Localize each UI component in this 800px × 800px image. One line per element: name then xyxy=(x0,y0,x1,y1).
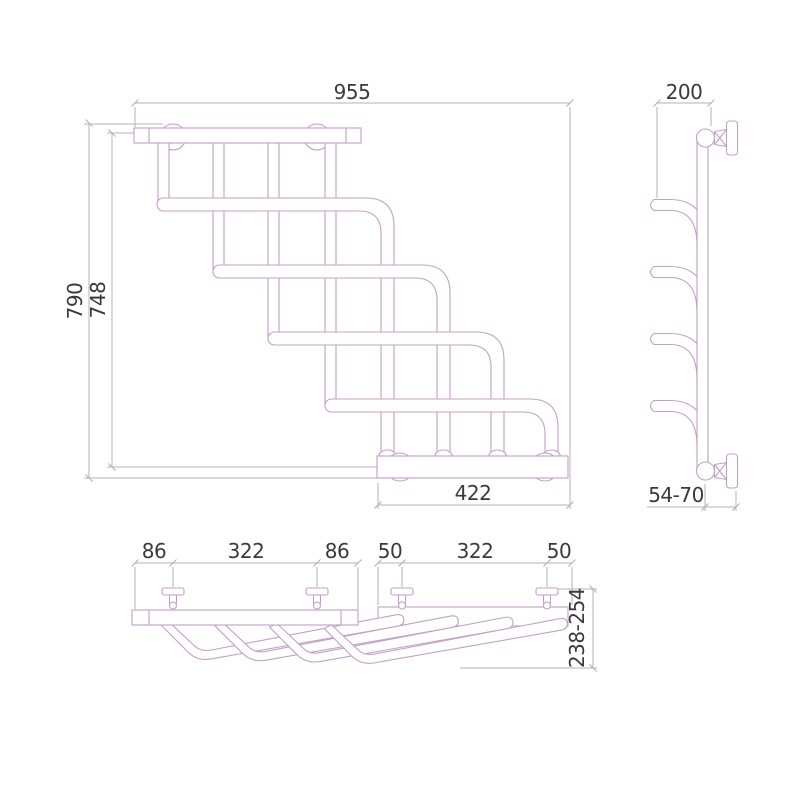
screw-icon xyxy=(391,588,413,609)
dim-overall-width: 955 xyxy=(334,80,371,104)
screw-icon xyxy=(536,588,558,609)
drawing-canvas: 955 200 790 748 422 54-70 86 322 86 50 3… xyxy=(0,0,800,800)
dim-wall-offset: 54-70 xyxy=(648,483,704,507)
dimension-ticks xyxy=(86,100,740,672)
dim-bracket-width: 422 xyxy=(455,481,492,505)
dim-right-end2: 50 xyxy=(547,539,571,563)
technical-drawing: 955 200 790 748 422 54-70 86 322 86 50 3… xyxy=(0,0,800,800)
side-main-tube xyxy=(697,134,708,472)
dim-right-end: 50 xyxy=(378,539,402,563)
front-view xyxy=(134,124,568,481)
dim-depth-range: 238-254 xyxy=(565,588,589,668)
dim-mount-height: 748 xyxy=(86,282,110,319)
top-wall-bar xyxy=(134,128,361,143)
top-view-left-bar xyxy=(132,610,358,625)
dim-depth: 200 xyxy=(666,80,703,104)
bottom-bracket xyxy=(377,450,568,481)
screw-icon xyxy=(162,588,184,609)
dim-overall-height: 790 xyxy=(63,283,87,320)
dim-left-end: 86 xyxy=(142,539,166,563)
top-view xyxy=(132,588,568,663)
dim-right-span: 322 xyxy=(457,539,494,563)
screw-icon xyxy=(306,588,328,609)
dimension-lines xyxy=(84,100,740,672)
dim-left-end2: 86 xyxy=(325,539,349,563)
top-vertical-tube-3 xyxy=(268,136,279,340)
mounting-screws xyxy=(162,588,558,609)
dim-left-span: 322 xyxy=(228,539,265,563)
side-view xyxy=(651,121,738,488)
top-vertical-tube-1 xyxy=(158,136,169,206)
